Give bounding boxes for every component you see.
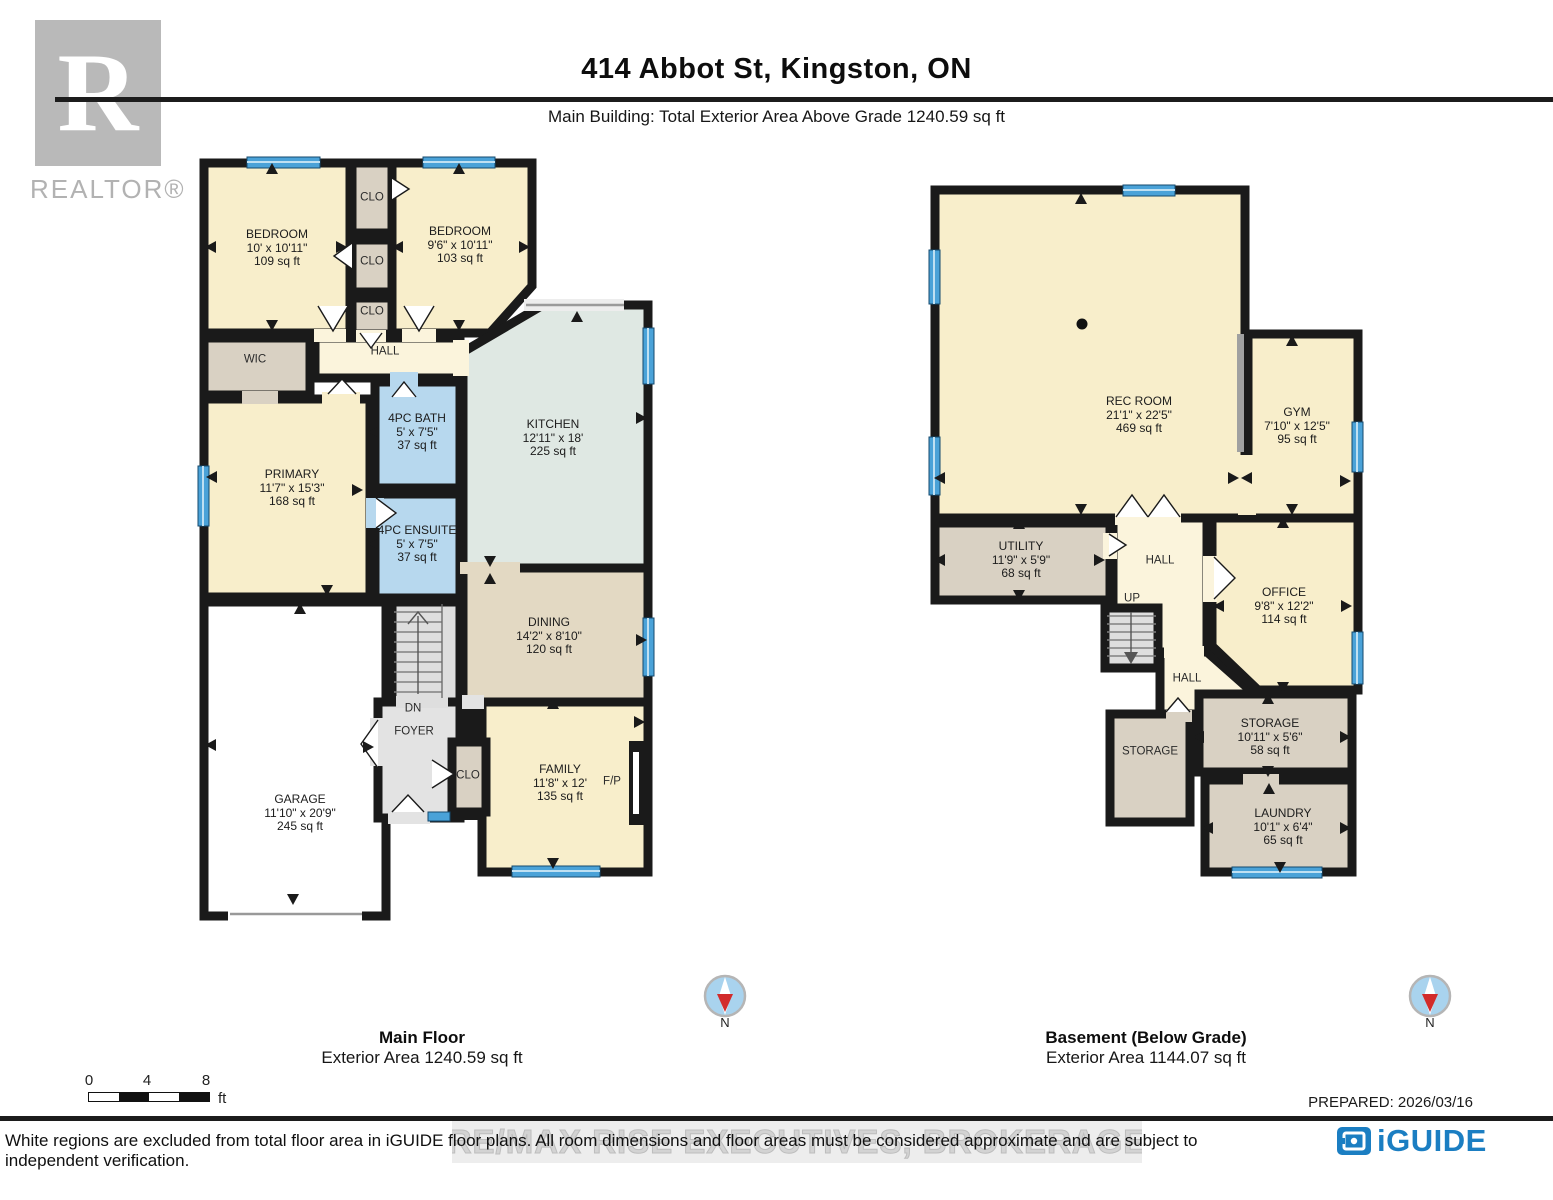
room-label-kitchen: KITCHEN 12'11" x 18' 225 sq ft: [523, 418, 584, 459]
footer-divider: [0, 1116, 1553, 1121]
room-dims: 11'9" x 5'9": [992, 553, 1050, 567]
room-area: 68 sq ft: [992, 567, 1050, 581]
basement-rooms: [935, 190, 1358, 872]
room-name: REC ROOM: [1106, 395, 1172, 409]
room-label-storage-right: STORAGE 10'11" x 5'6" 58 sq ft: [1238, 717, 1303, 758]
room-area: 95 sq ft: [1264, 433, 1330, 447]
room-name: UP: [1124, 592, 1140, 606]
room-label-ensuite: 4PC ENSUITE 5' x 7'5" 37 sq ft: [378, 524, 457, 565]
stairs-up-label: UP: [1124, 592, 1140, 606]
compass-icon-main: [702, 973, 748, 1019]
scale-seg: [119, 1093, 149, 1101]
scale-seg: [179, 1093, 209, 1101]
room-area: 168 sq ft: [260, 495, 325, 509]
room-name: HALL: [371, 345, 400, 359]
room-dims: 9'8" x 12'2": [1254, 599, 1313, 613]
room-dims: 10'1" x 6'4": [1253, 820, 1312, 834]
room-label-rec-room: REC ROOM 21'1" x 22'5" 469 sq ft: [1106, 395, 1172, 436]
room-label-closet-mid: CLO: [360, 255, 384, 269]
floor-name: Main Floor: [321, 1028, 522, 1048]
support-column-icon: [1077, 319, 1088, 330]
room-dims: 11'7" x 15'3": [260, 481, 325, 495]
room-name: CLO: [360, 305, 384, 319]
room-label-laundry: LAUNDRY 10'1" x 6'4" 65 sq ft: [1253, 807, 1312, 848]
main-floor-caption: Main Floor Exterior Area 1240.59 sq ft: [321, 1028, 522, 1068]
room-name: HALL: [1173, 672, 1202, 686]
room-area: 114 sq ft: [1254, 613, 1313, 627]
floor-area: Exterior Area 1240.59 sq ft: [321, 1048, 522, 1068]
room-label-office: OFFICE 9'8" x 12'2" 114 sq ft: [1254, 586, 1313, 627]
room-name: STORAGE: [1122, 745, 1178, 759]
room-label-primary: PRIMARY 11'7" x 15'3" 168 sq ft: [260, 468, 325, 509]
room-label-closet-bottom: CLO: [360, 305, 384, 319]
floorplan-page: R REALTOR® 414 Abbot St, Kingston, ON Ma…: [0, 0, 1553, 1200]
room-dims: 11'10" x 20'9": [264, 806, 336, 820]
prepared-date: PREPARED: 2026/03/16: [1293, 1094, 1473, 1111]
room-label-garage: GARAGE 11'10" x 20'9" 245 sq ft: [264, 793, 336, 834]
room-dims: 10'11" x 5'6": [1238, 730, 1303, 744]
room-area: 37 sq ft: [378, 551, 457, 565]
compass-icon-basement: [1407, 973, 1453, 1019]
main-fireplace-icon: [629, 741, 646, 825]
room-area: 109 sq ft: [246, 255, 308, 269]
room-name: OFFICE: [1254, 586, 1313, 600]
room-name: STORAGE: [1238, 717, 1303, 731]
room-name: BEDROOM: [428, 225, 493, 239]
room-name: 4PC ENSUITE: [378, 524, 457, 538]
room-name: LAUNDRY: [1253, 807, 1312, 821]
room-label-gym: GYM 7'10" x 12'5" 95 sq ft: [1264, 406, 1330, 447]
room-dims: 5' x 7'5": [378, 537, 457, 551]
fireplace-label: F/P: [603, 775, 621, 789]
room-name: HALL: [1146, 554, 1175, 568]
room-name: CLO: [360, 191, 384, 205]
realtor-logo: R REALTOR®: [30, 20, 200, 205]
room-area: 469 sq ft: [1106, 422, 1172, 436]
scale-tick-8: 8: [202, 1072, 210, 1089]
page-title: 414 Abbot St, Kingston, ON: [0, 53, 1553, 86]
scale-bar: 0 4 8 ft: [82, 1072, 272, 1112]
room-name: GARAGE: [264, 793, 336, 807]
room-name: BEDROOM: [246, 228, 308, 242]
stairs-down-label: DN: [405, 702, 422, 716]
room-dims: 12'11" x 18': [523, 431, 584, 445]
room-dims: 14'2" x 8'10": [516, 629, 582, 643]
room-name: DN: [405, 702, 422, 716]
room-label-foyer: FOYER: [394, 725, 434, 739]
room-name: F/P: [603, 775, 621, 789]
room-label-family: FAMILY 11'8" x 12' 135 sq ft: [533, 763, 587, 804]
room-label-dining: DINING 14'2" x 8'10" 120 sq ft: [516, 616, 582, 657]
room-name: PRIMARY: [260, 468, 325, 482]
room-label-foyer-closet: CLO: [456, 769, 480, 783]
room-label-hall-lower: HALL: [1173, 672, 1202, 686]
room-area: 103 sq ft: [428, 252, 493, 266]
room-label-wic: WIC: [244, 353, 266, 367]
realtor-r-icon: R: [35, 20, 161, 166]
room-dims: 11'8" x 12': [533, 776, 587, 790]
room-name: FAMILY: [533, 763, 587, 777]
room-area: 120 sq ft: [516, 643, 582, 657]
basement-caption: Basement (Below Grade) Exterior Area 114…: [1045, 1028, 1246, 1068]
scale-ticks: 0 4 8: [82, 1072, 272, 1090]
scale-unit: ft: [218, 1090, 226, 1107]
scale-bar-segments: [88, 1092, 210, 1102]
page-subtitle: Main Building: Total Exterior Area Above…: [0, 107, 1553, 127]
title-divider: [55, 97, 1553, 102]
room-name: GYM: [1264, 406, 1330, 420]
room-area: 135 sq ft: [533, 790, 587, 804]
scale-tick-0: 0: [85, 1072, 93, 1089]
room-name: KITCHEN: [523, 418, 584, 432]
room-dims: 21'1" x 22'5": [1106, 408, 1172, 422]
room-area: 37 sq ft: [388, 439, 446, 453]
scale-seg: [89, 1093, 119, 1101]
room-name: WIC: [244, 353, 266, 367]
room-dims: 7'10" x 12'5": [1264, 419, 1330, 433]
room-dims: 9'6" x 10'11": [428, 238, 493, 252]
room-dims: 5' x 7'5": [388, 425, 446, 439]
room-area: 245 sq ft: [264, 820, 336, 834]
scale-seg: [149, 1093, 179, 1101]
room-label-utility: UTILITY 11'9" x 5'9" 68 sq ft: [992, 540, 1050, 581]
realtor-wordmark: REALTOR®: [30, 174, 200, 205]
room-dims: 10' x 10'11": [246, 241, 308, 255]
room-label-closet-top: CLO: [360, 191, 384, 205]
scale-tick-4: 4: [143, 1072, 151, 1089]
room-label-hall: HALL: [371, 345, 400, 359]
compass-north-label-main: N: [720, 1015, 729, 1030]
room-name: CLO: [360, 255, 384, 269]
room-area: 58 sq ft: [1238, 744, 1303, 758]
disclaimer-text: White regions are excluded from total fl…: [5, 1131, 1265, 1171]
room-name: 4PC BATH: [388, 412, 446, 426]
iguide-wordmark: iGUIDE: [1377, 1123, 1487, 1159]
room-label-bedroom-left: BEDROOM 10' x 10'11" 109 sq ft: [246, 228, 308, 269]
iguide-camera-icon: [1336, 1123, 1372, 1159]
basement-floor-plan: [920, 178, 1370, 890]
room-label-hall-upper: HALL: [1146, 554, 1175, 568]
room-label-bath: 4PC BATH 5' x 7'5" 37 sq ft: [388, 412, 446, 453]
floor-name: Basement (Below Grade): [1045, 1028, 1246, 1048]
floor-area: Exterior Area 1144.07 sq ft: [1045, 1048, 1246, 1068]
compass-north-label-basement: N: [1425, 1015, 1434, 1030]
room-name: UTILITY: [992, 540, 1050, 554]
room-area: 225 sq ft: [523, 445, 584, 459]
room-label-bedroom-right: BEDROOM 9'6" x 10'11" 103 sq ft: [428, 225, 493, 266]
realtor-r-letter: R: [58, 37, 139, 149]
room-name: FOYER: [394, 725, 434, 739]
room-label-storage-left: STORAGE: [1122, 745, 1178, 759]
room-name: CLO: [456, 769, 480, 783]
room-area: 65 sq ft: [1253, 834, 1312, 848]
room-name: DINING: [516, 616, 582, 630]
iguide-logo: iGUIDE: [1336, 1123, 1487, 1159]
